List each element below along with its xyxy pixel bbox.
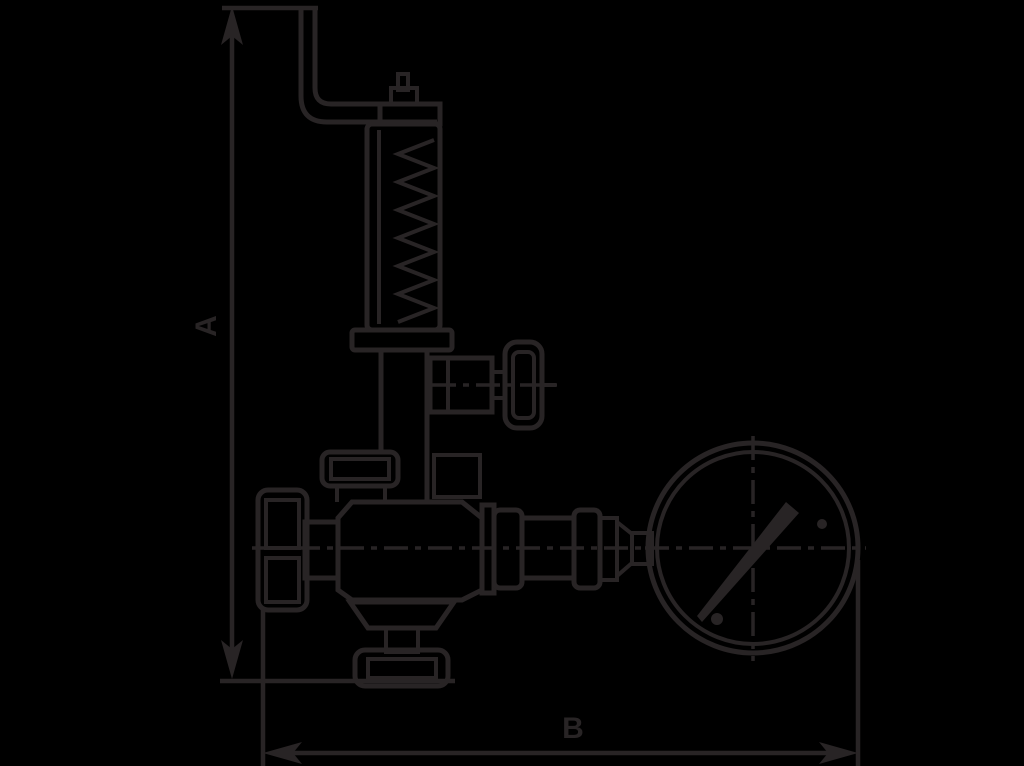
dim-b-label: B: [562, 712, 584, 745]
valve-diagram: A B: [0, 0, 1024, 766]
knob-inner-top: [266, 500, 299, 548]
knob-stem: [305, 522, 338, 578]
side-boss: [434, 455, 480, 497]
gauge-dial-screw-right: [817, 519, 827, 529]
technical-drawing-canvas: A B: [0, 0, 1024, 766]
top-stem: [380, 74, 440, 124]
outlet-cone: [350, 602, 454, 628]
dimension-b: B: [263, 560, 858, 766]
chamber-flange: [322, 452, 398, 502]
gauge-dial-screw-left: [711, 613, 723, 625]
spring-bonnet: [352, 124, 452, 350]
valve-body: [338, 502, 482, 686]
dim-a-label: A: [190, 315, 223, 337]
knob-inner-bottom: [266, 558, 299, 602]
adjustment-knob: [258, 490, 338, 610]
bottom-flange-inner: [368, 659, 436, 678]
chamber-flange-inner: [331, 459, 389, 479]
gauge-needle: [697, 502, 799, 622]
body-outline: [338, 502, 482, 600]
spring-coil: [398, 140, 434, 322]
bonnet-flange: [352, 330, 452, 350]
